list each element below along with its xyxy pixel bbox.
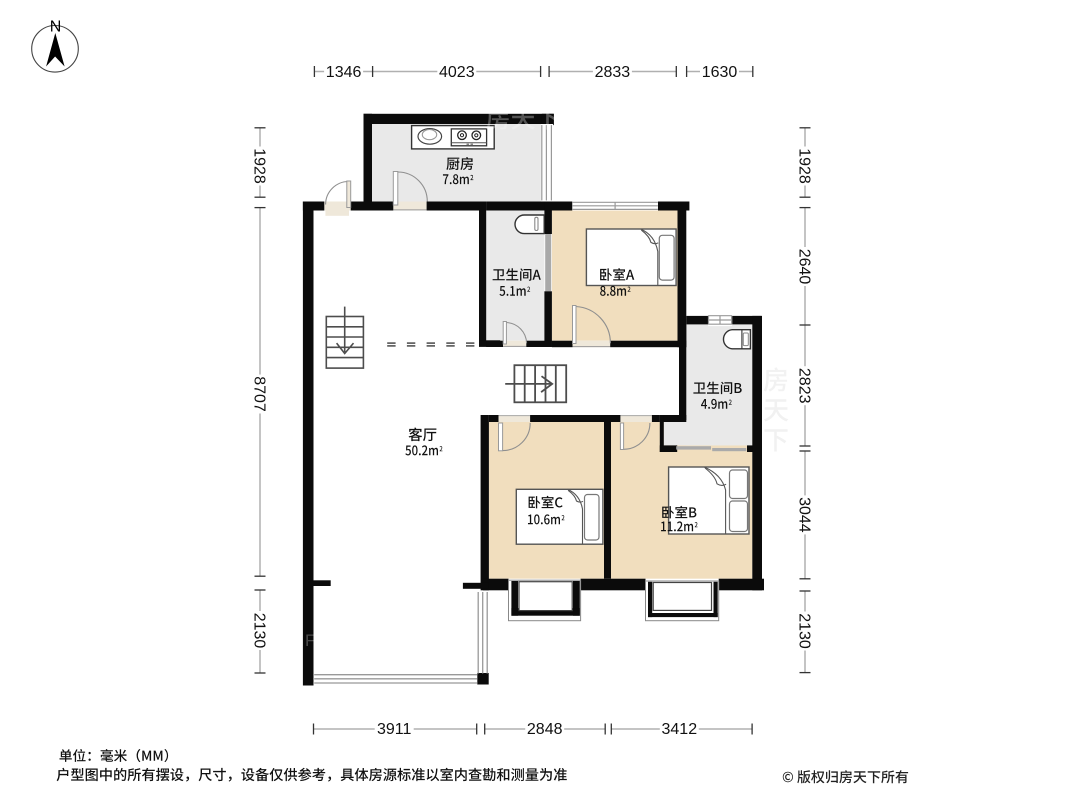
svg-text:1346: 1346 bbox=[326, 64, 362, 81]
svg-text:2130: 2130 bbox=[251, 613, 268, 649]
svg-text:N: N bbox=[50, 19, 62, 36]
svg-text:3044: 3044 bbox=[796, 497, 813, 533]
svg-text:2833: 2833 bbox=[595, 64, 631, 81]
svg-text:3412: 3412 bbox=[662, 721, 698, 738]
svg-text:2823: 2823 bbox=[796, 368, 813, 404]
svg-text:4023: 4023 bbox=[439, 64, 475, 81]
svg-text:1928: 1928 bbox=[796, 148, 813, 184]
svg-text:2130: 2130 bbox=[796, 613, 813, 649]
svg-text:1630: 1630 bbox=[702, 64, 738, 81]
svg-text:8707: 8707 bbox=[251, 376, 268, 412]
svg-text:3911: 3911 bbox=[377, 721, 412, 738]
svg-text:2848: 2848 bbox=[527, 721, 563, 738]
svg-text:2640: 2640 bbox=[796, 249, 813, 285]
svg-text:1928: 1928 bbox=[251, 148, 268, 184]
svg-text:F: F bbox=[305, 631, 315, 650]
